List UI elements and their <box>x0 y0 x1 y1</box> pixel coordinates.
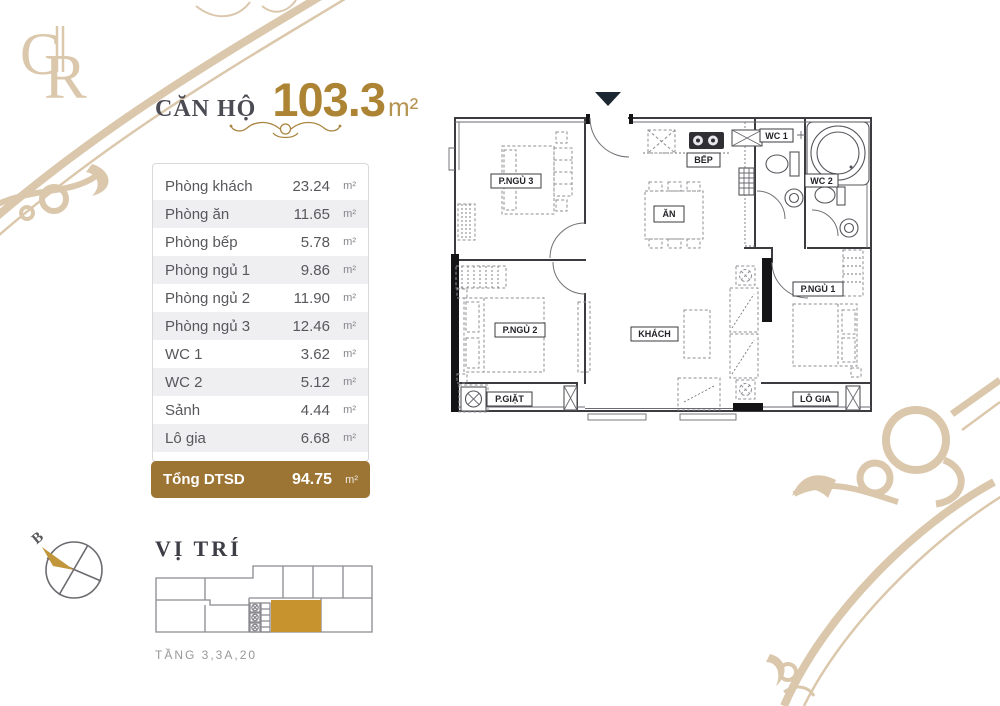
room-area-value: 9.86 <box>278 262 330 279</box>
room-label: Sảnh <box>165 402 200 419</box>
entrance-arrow <box>595 92 621 106</box>
svg-text:WC 1: WC 1 <box>765 131 788 141</box>
room-label-kitchen: BẾP <box>687 153 720 167</box>
svg-text:KHÁCH: KHÁCH <box>638 329 671 339</box>
room-area-value: 12.46 <box>278 318 330 335</box>
svg-text:P.NGỦ 3: P.NGỦ 3 <box>499 175 534 186</box>
room-area-value: 23.24 <box>278 178 330 195</box>
divider-flourish <box>228 117 343 143</box>
louver-window <box>846 386 860 410</box>
bedroom1-furniture <box>793 250 863 377</box>
compass: B <box>26 520 118 612</box>
brochure-page: G R CĂN HỘ 103.3 m² <box>0 0 1000 706</box>
ornament-leaf <box>86 164 109 196</box>
room-area-value: 5.78 <box>278 234 330 251</box>
room-label: Phòng khách <box>165 178 253 195</box>
room-label: WC 1 <box>165 346 203 363</box>
room-area-value: 11.90 <box>278 290 330 307</box>
room-area-unit: m² <box>330 208 356 220</box>
room-label: Phòng ngủ 1 <box>165 262 250 279</box>
area-row: WC 2 5.12 m² <box>153 368 368 396</box>
room-area-value: 6.68 <box>278 430 330 447</box>
stove-icon <box>689 132 724 149</box>
floor-plan: P.NGỦ 3 BẾP ĂN WC 1 WC 2 P.NGỦ 1 P.NGỦ 2… <box>448 90 878 440</box>
room-area-unit: m² <box>330 292 356 304</box>
room-label: WC 2 <box>165 374 203 391</box>
room-label-living: KHÁCH <box>631 327 678 341</box>
area-row: Phòng ngủ 3 12.46 m² <box>153 312 368 340</box>
shear-wall <box>762 258 772 322</box>
room-label: Lô gia <box>165 430 206 447</box>
room-label-dining: ĂN <box>654 206 684 222</box>
svg-text:ĂN: ĂN <box>663 209 676 219</box>
room-label: Phòng ngủ 3 <box>165 318 250 335</box>
room-area-unit: m² <box>330 180 356 192</box>
room-label: Phòng ăn <box>165 206 229 223</box>
room-area-value: 3.62 <box>278 346 330 363</box>
room-area-unit: m² <box>330 236 356 248</box>
north-label: B <box>29 529 47 548</box>
svg-text:LÔ GIA: LÔ GIA <box>800 393 831 404</box>
area-row: Phòng bếp 5.78 m² <box>153 228 368 256</box>
total-unit: m² <box>332 474 358 486</box>
shear-wall <box>733 403 763 411</box>
elevator-core <box>250 603 270 632</box>
area-table: Phòng khách 23.24 m² Phòng ăn 11.65 m² P… <box>152 163 369 462</box>
room-label-bedroom3: P.NGỦ 3 <box>491 174 541 188</box>
brand-monogram-right: R <box>44 41 87 112</box>
room-label: Phòng bếp <box>165 234 238 251</box>
total-label: Tổng DTSD <box>163 471 245 488</box>
svg-text:P.GIẶT: P.GIẶT <box>495 394 524 404</box>
room-label-wc1: WC 1 <box>760 129 793 142</box>
area-row: Sảnh 4.44 m² <box>153 396 368 424</box>
area-row: WC 1 3.62 m² <box>153 340 368 368</box>
vent-grille <box>739 168 754 195</box>
fridge <box>648 130 675 153</box>
total-area-bar: Tổng DTSD 94.75 m² <box>151 461 370 498</box>
svg-text:P.NGỦ 1: P.NGỦ 1 <box>801 283 836 294</box>
room-area-unit: m² <box>330 264 356 276</box>
room-area-unit: m² <box>330 432 356 444</box>
shaft-box <box>732 130 762 146</box>
room-area-unit: m² <box>330 320 356 332</box>
area-row: Phòng ngủ 2 11.90 m² <box>153 284 368 312</box>
location-title: VỊ TRÍ <box>155 536 242 562</box>
room-label-bedroom1: P.NGỦ 1 <box>793 282 843 296</box>
room-label: Phòng ngủ 2 <box>165 290 250 307</box>
location-map <box>153 562 375 648</box>
shear-wall <box>451 254 459 412</box>
room-area-value: 11.65 <box>278 206 330 223</box>
unit-area-unit: m² <box>388 92 418 123</box>
total-value: 94.75 <box>292 471 332 489</box>
room-area-unit: m² <box>330 404 356 416</box>
room-label-laundry: P.GIẶT <box>487 392 532 406</box>
svg-text:P.NGỦ 2: P.NGỦ 2 <box>503 324 538 335</box>
floor-caption: TẦNG 3,3A,20 <box>155 648 257 662</box>
room-area-value: 4.44 <box>278 402 330 419</box>
room-area-unit: m² <box>330 348 356 360</box>
room-label-bedroom2: P.NGỦ 2 <box>495 323 545 337</box>
area-row: Lô gia 6.68 m² <box>153 424 368 452</box>
area-row: Phòng khách 23.24 m² <box>153 172 368 200</box>
brand-monogram-left: G <box>20 21 63 87</box>
area-row: Phòng ngủ 1 9.86 m² <box>153 256 368 284</box>
room-area-unit: m² <box>330 376 356 388</box>
louver-window <box>564 386 577 410</box>
highlighted-unit <box>271 600 321 632</box>
room-label-loggia: LÔ GIA <box>793 392 838 406</box>
washing-machine-icon <box>459 385 488 412</box>
svg-text:BẾP: BẾP <box>694 155 713 165</box>
area-row: Phòng ăn 11.65 m² <box>153 200 368 228</box>
room-area-value: 5.12 <box>278 374 330 391</box>
svg-text:WC 2: WC 2 <box>810 176 833 186</box>
room-label-wc2: WC 2 <box>805 174 838 187</box>
